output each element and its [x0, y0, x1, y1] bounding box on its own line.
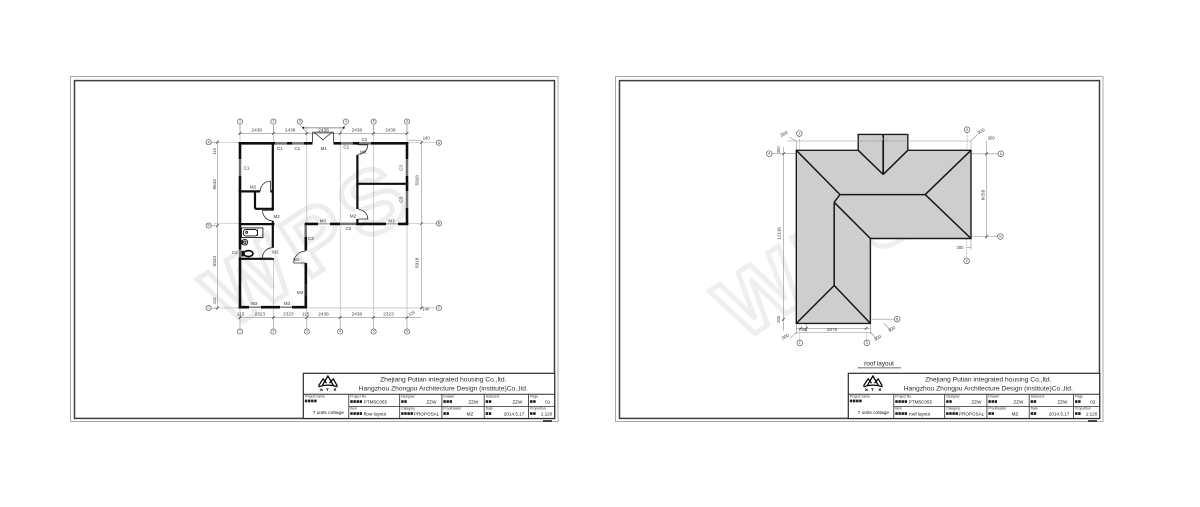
svg-text:5943: 5943 — [212, 256, 217, 267]
svg-text:Zhejiang Putian integrated hou: Zhejiang Putian integrated housing Co.,l… — [925, 377, 1052, 384]
svg-text:1: 1 — [799, 341, 801, 345]
svg-text:2323: 2323 — [283, 312, 294, 317]
svg-text:Assessor: Assessor — [1031, 395, 1046, 399]
svg-text:115: 115 — [212, 297, 217, 304]
svg-text:2438: 2438 — [318, 312, 329, 317]
svg-text:M2: M2 — [273, 214, 280, 219]
svg-text:Project No.: Project No. — [350, 395, 367, 399]
svg-text:M3: M3 — [297, 290, 304, 295]
svg-text:C1: C1 — [244, 166, 250, 171]
svg-text:floor layout: floor layout — [364, 412, 387, 417]
svg-text:300: 300 — [776, 315, 781, 323]
svg-text:3: 3 — [866, 341, 868, 345]
svg-text:M2: M2 — [293, 257, 300, 262]
svg-text:Project name: Project name — [305, 395, 325, 399]
svg-text:C3: C3 — [399, 196, 404, 202]
svg-text:4876: 4876 — [827, 327, 838, 332]
svg-text:C3: C3 — [308, 236, 314, 241]
svg-text:B: B — [999, 235, 1001, 239]
svg-text:M2: M2 — [360, 150, 367, 155]
svg-text:2: 2 — [273, 330, 275, 334]
svg-text:PROPOSAL: PROPOSAL — [959, 412, 985, 417]
svg-text:M3: M3 — [320, 219, 327, 224]
svg-text:6: 6 — [406, 330, 408, 334]
svg-text:B: B — [208, 224, 210, 228]
svg-text:300: 300 — [776, 146, 781, 154]
svg-text:140: 140 — [422, 307, 430, 312]
svg-text:C1: C1 — [294, 146, 300, 151]
svg-text:ZZW: ZZW — [1057, 400, 1068, 405]
svg-text:6: 6 — [406, 120, 408, 124]
svg-text:2014.5.17: 2014.5.17 — [504, 412, 525, 417]
svg-text:2438: 2438 — [352, 312, 363, 317]
svg-text:7 units cottage: 7 units cottage — [313, 410, 345, 416]
svg-text:C3: C3 — [399, 165, 404, 171]
svg-text:2438: 2438 — [251, 128, 262, 133]
svg-text:5: 5 — [966, 128, 968, 132]
svg-text:Item: Item — [895, 407, 902, 411]
svg-text:Project No.: Project No. — [895, 395, 912, 399]
svg-text:1: 1 — [239, 330, 241, 334]
svg-text:12116: 12116 — [777, 227, 782, 240]
svg-text:Designer: Designer — [946, 395, 960, 399]
svg-text:C1: C1 — [277, 146, 283, 151]
svg-text:ZZW: ZZW — [468, 400, 479, 405]
svg-text:115: 115 — [212, 147, 217, 154]
svg-text:1: 1 — [239, 120, 241, 124]
svg-text:Page: Page — [530, 395, 538, 399]
svg-text:Drawer: Drawer — [988, 395, 1000, 399]
svg-text:C2: C2 — [232, 250, 238, 255]
svg-text:Drawer: Drawer — [443, 395, 455, 399]
svg-text:Item: Item — [350, 407, 357, 411]
svg-text:C3: C3 — [345, 226, 351, 231]
svg-text:Zhejiang Putian integrated hou: Zhejiang Putian integrated housing Co.,l… — [380, 377, 507, 384]
svg-text:02: 02 — [1090, 400, 1096, 405]
svg-text:Proportion: Proportion — [1075, 407, 1091, 411]
svg-text:M3: M3 — [388, 219, 395, 224]
svg-text:Proportion: Proportion — [530, 407, 546, 411]
svg-text:PTM5C055: PTM5C055 — [909, 400, 933, 405]
svg-text:C1: C1 — [362, 137, 368, 142]
svg-text:5643: 5643 — [212, 179, 217, 190]
svg-text:5: 5 — [966, 259, 968, 263]
svg-text:M1: M1 — [321, 146, 328, 151]
svg-text:1356: 1356 — [799, 328, 807, 332]
svg-text:MZ: MZ — [467, 412, 474, 417]
svg-text:2: 2 — [273, 120, 275, 124]
svg-text:2438: 2438 — [352, 128, 363, 133]
svg-text:Hangzhou Zhongpu Architecture: Hangzhou Zhongpu Architecture Design (in… — [359, 385, 528, 392]
svg-text:ZZW: ZZW — [426, 400, 437, 405]
svg-text:5918: 5918 — [414, 175, 419, 186]
svg-text:PTM5C055: PTM5C055 — [364, 400, 388, 405]
svg-text:4: 4 — [339, 330, 341, 334]
svg-text:115: 115 — [302, 312, 310, 317]
svg-text:ZZW: ZZW — [971, 400, 982, 405]
svg-text:2438: 2438 — [879, 137, 889, 142]
svg-text:PROPOSAL: PROPOSAL — [414, 412, 440, 417]
svg-text:Page: Page — [1075, 395, 1083, 399]
svg-text:5: 5 — [373, 330, 375, 334]
svg-text:M3: M3 — [284, 301, 291, 306]
svg-text:1:120: 1:120 — [1086, 412, 1098, 417]
svg-text:Category: Category — [946, 407, 960, 411]
svg-text:3: 3 — [299, 120, 301, 124]
svg-text:2438: 2438 — [385, 128, 396, 133]
svg-text:Project name: Project name — [850, 395, 870, 399]
svg-text:Date: Date — [1031, 407, 1038, 411]
svg-text:300: 300 — [988, 136, 996, 141]
svg-text:M2: M2 — [350, 213, 357, 218]
svg-text:B: B — [438, 222, 440, 226]
svg-text:2438: 2438 — [285, 128, 296, 133]
svg-text:roof layout: roof layout — [909, 412, 931, 417]
svg-text:115: 115 — [237, 312, 245, 317]
svg-text:M2: M2 — [250, 184, 257, 189]
svg-text:Date: Date — [486, 407, 493, 411]
svg-text:2014.5.17: 2014.5.17 — [1049, 412, 1070, 417]
svg-text:MZ: MZ — [1012, 412, 1019, 417]
svg-text:2323: 2323 — [383, 312, 394, 317]
svg-text:Proofreader: Proofreader — [443, 407, 462, 411]
svg-text:Assessor: Assessor — [486, 395, 501, 399]
svg-text:ZZW: ZZW — [512, 400, 523, 405]
svg-text:Designer: Designer — [401, 395, 415, 399]
svg-text:Category: Category — [401, 407, 415, 411]
svg-text:M2: M2 — [272, 249, 279, 254]
svg-text:ZZW: ZZW — [1013, 400, 1024, 405]
svg-text:7 units cottage: 7 units cottage — [858, 410, 890, 416]
svg-text:300: 300 — [957, 245, 965, 250]
svg-text:2: 2 — [798, 132, 800, 136]
svg-text:C1: C1 — [343, 145, 349, 150]
svg-text:01: 01 — [545, 400, 551, 405]
svg-text:Hangzhou Zhongpu Architecture: Hangzhou Zhongpu Architecture Design (in… — [904, 385, 1073, 392]
svg-text:1:120: 1:120 — [541, 412, 553, 417]
svg-text:5918: 5918 — [414, 257, 419, 268]
svg-text:Proofreader: Proofreader — [988, 407, 1007, 411]
svg-text:roof layout: roof layout — [864, 361, 894, 368]
svg-text:3: 3 — [306, 330, 308, 334]
svg-text:B: B — [896, 317, 898, 321]
svg-text:140: 140 — [423, 136, 431, 141]
svg-text:6058: 6058 — [981, 189, 986, 200]
svg-text:M3: M3 — [251, 301, 258, 306]
svg-text:2323: 2323 — [255, 312, 266, 317]
svg-text:4: 4 — [345, 120, 347, 124]
svg-text:5: 5 — [373, 120, 375, 124]
